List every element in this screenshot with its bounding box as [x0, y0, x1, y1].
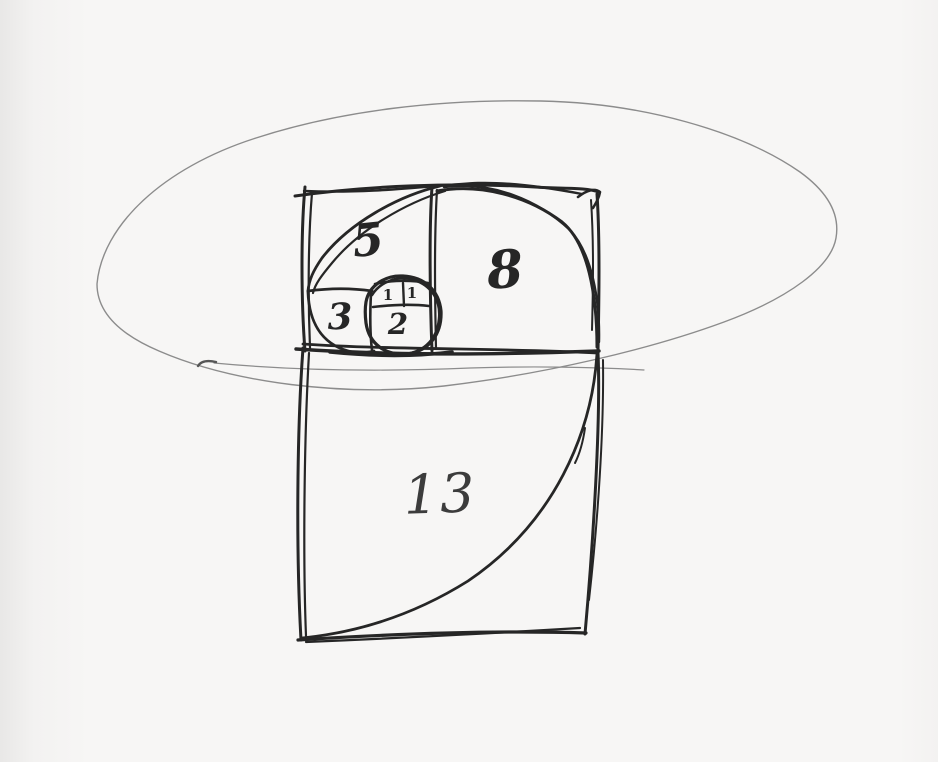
label-square-1-left: 1: [383, 286, 393, 304]
paper-background: [0, 0, 938, 762]
sketch-page: 5 8 3 2 1 1 13: [0, 0, 938, 762]
divider-1-1: [403, 283, 404, 306]
label-square-3: 3: [327, 296, 354, 339]
label-square-2: 2: [387, 307, 408, 341]
label-square-13: 13: [403, 461, 478, 526]
label-square-1-right: 1: [407, 284, 417, 302]
label-square-5: 5: [350, 212, 387, 268]
fibonacci-sketch-canvas: 5 8 3 2 1 1 13: [0, 0, 938, 762]
label-square-8: 8: [484, 238, 525, 301]
